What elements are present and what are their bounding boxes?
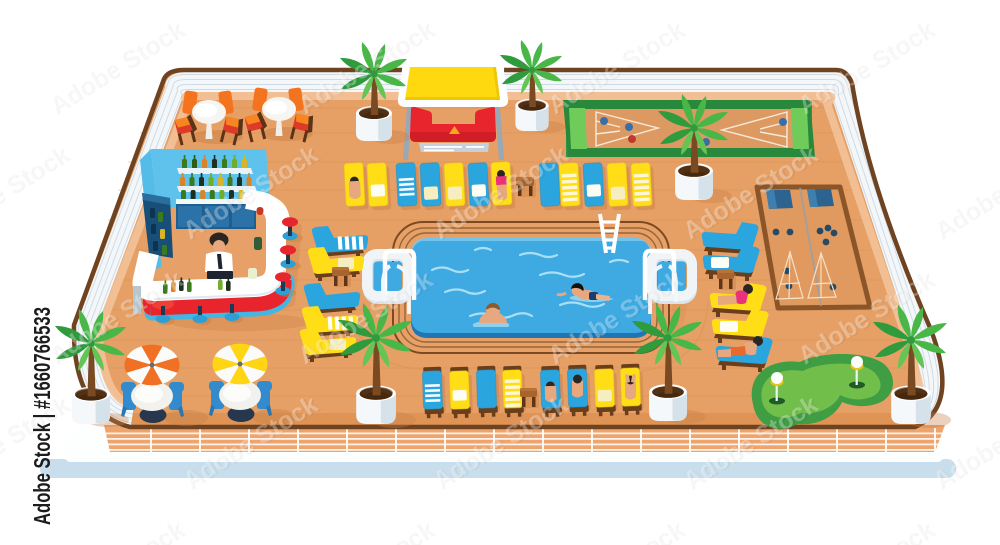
svg-text:Adobe Stock | #1660766533: Adobe Stock | #1660766533 [29,307,55,525]
